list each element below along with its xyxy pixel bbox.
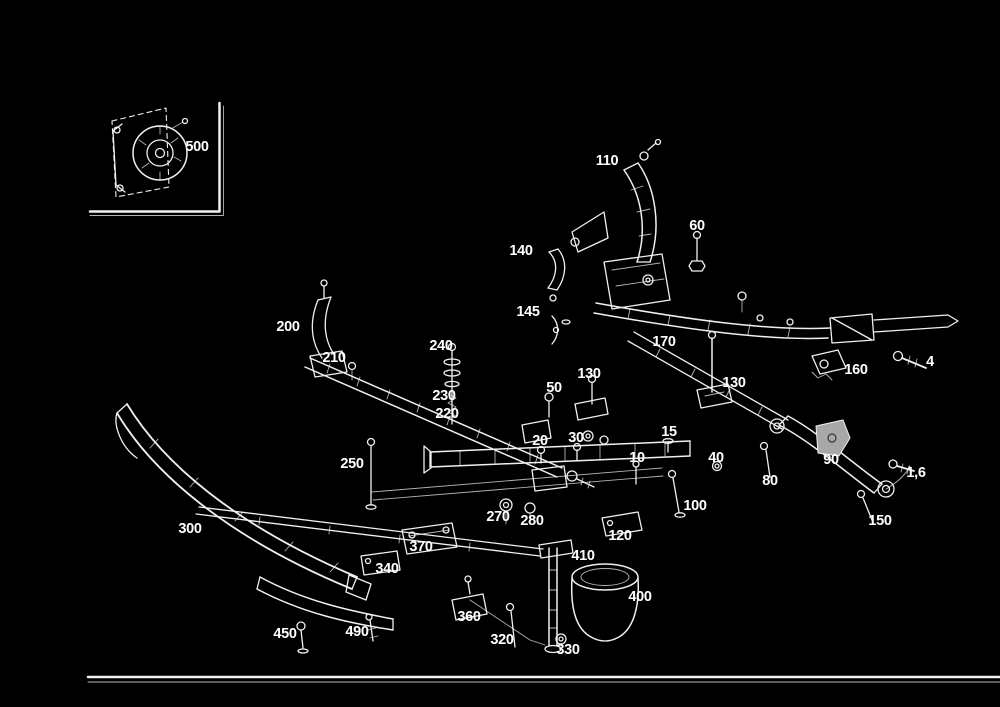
part-label-30-17[interactable]: 30 bbox=[568, 431, 584, 446]
part-label-340-32[interactable]: 340 bbox=[375, 562, 398, 577]
part-label-140-3[interactable]: 140 bbox=[509, 244, 532, 259]
part-label-100-25[interactable]: 100 bbox=[683, 499, 706, 514]
part-label-410-36[interactable]: 410 bbox=[571, 549, 594, 564]
sketch-strut-and-cup bbox=[452, 540, 638, 653]
part-label-360-33[interactable]: 360 bbox=[457, 610, 480, 625]
part-label-90-22[interactable]: 90 bbox=[823, 453, 839, 468]
sketch-mid-fasteners bbox=[538, 376, 722, 485]
sketch-top-strut bbox=[571, 140, 670, 310]
part-label-300-30[interactable]: 300 bbox=[178, 522, 201, 537]
part-label-120-26[interactable]: 120 bbox=[608, 529, 631, 544]
part-label-280-29[interactable]: 280 bbox=[520, 514, 543, 529]
part-label-450-34[interactable]: 450 bbox=[273, 627, 296, 642]
sketch-bottom-baseline bbox=[88, 677, 1000, 682]
part-label-10-18[interactable]: 10 bbox=[629, 451, 645, 466]
sketch-bolt-60 bbox=[689, 232, 705, 272]
sketch-bolt-250 bbox=[366, 439, 376, 510]
part-label-370-31[interactable]: 370 bbox=[409, 540, 432, 555]
part-label-200-5[interactable]: 200 bbox=[276, 320, 299, 335]
part-label-130-12[interactable]: 130 bbox=[722, 376, 745, 391]
part-label-400-37[interactable]: 400 bbox=[628, 590, 651, 605]
part-label-15-19[interactable]: 15 bbox=[661, 425, 677, 440]
part-label-4-14[interactable]: 4 bbox=[926, 355, 934, 370]
sketch-brackets-140-145 bbox=[548, 249, 570, 344]
part-label-500-0[interactable]: 500 bbox=[185, 140, 208, 155]
part-label-110-1[interactable]: 110 bbox=[596, 154, 619, 169]
part-label-60-2[interactable]: 60 bbox=[689, 219, 705, 234]
part-label-320-38[interactable]: 320 bbox=[490, 633, 513, 648]
sketch-top-right-rail bbox=[594, 292, 958, 380]
part-label-145-4[interactable]: 145 bbox=[516, 305, 539, 320]
part-label-150-24[interactable]: 150 bbox=[868, 514, 891, 529]
part-label-330-39[interactable]: 330 bbox=[556, 643, 579, 658]
part-label-160-13[interactable]: 160 bbox=[844, 363, 867, 378]
part-label-40-20[interactable]: 40 bbox=[708, 451, 724, 466]
part-label-170-10[interactable]: 170 bbox=[652, 335, 675, 350]
sketch-bracket-130-right bbox=[697, 332, 732, 409]
part-label-1_6-23[interactable]: 1,6 bbox=[906, 466, 925, 481]
part-label-250-27[interactable]: 250 bbox=[340, 457, 363, 472]
diagram-line-art bbox=[0, 0, 1000, 707]
sketch-inset-box bbox=[90, 103, 224, 216]
part-label-490-35[interactable]: 490 bbox=[345, 625, 368, 640]
part-label-20-16[interactable]: 20 bbox=[532, 434, 548, 449]
part-label-130-11[interactable]: 130 bbox=[577, 367, 600, 382]
part-label-220-9[interactable]: 220 bbox=[435, 407, 458, 422]
sketch-right-control-arm bbox=[761, 416, 915, 520]
part-label-50-15[interactable]: 50 bbox=[546, 381, 562, 396]
part-label-270-28[interactable]: 270 bbox=[486, 510, 509, 525]
part-label-230-8[interactable]: 230 bbox=[432, 389, 455, 404]
parts-diagram: 5001106014014520021024023022017013013016… bbox=[0, 0, 1000, 707]
part-label-240-7[interactable]: 240 bbox=[429, 339, 452, 354]
part-label-80-21[interactable]: 80 bbox=[762, 474, 778, 489]
part-label-210-6[interactable]: 210 bbox=[322, 351, 345, 366]
